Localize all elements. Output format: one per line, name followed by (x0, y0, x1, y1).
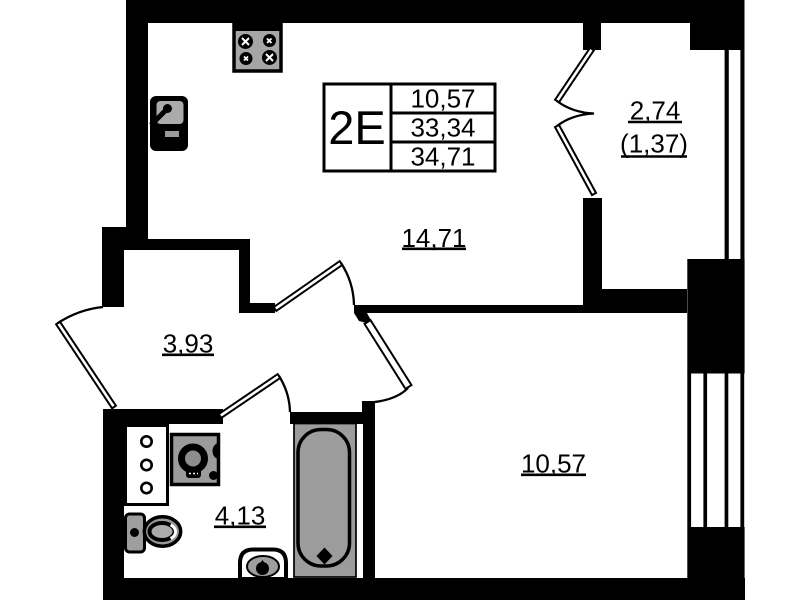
svg-text:33,34: 33,34 (410, 113, 475, 143)
svg-text:(1,37): (1,37) (620, 129, 688, 159)
svg-text:2E: 2E (328, 101, 386, 154)
svg-text:34,71: 34,71 (410, 142, 475, 172)
svg-text:10,57: 10,57 (410, 84, 475, 114)
